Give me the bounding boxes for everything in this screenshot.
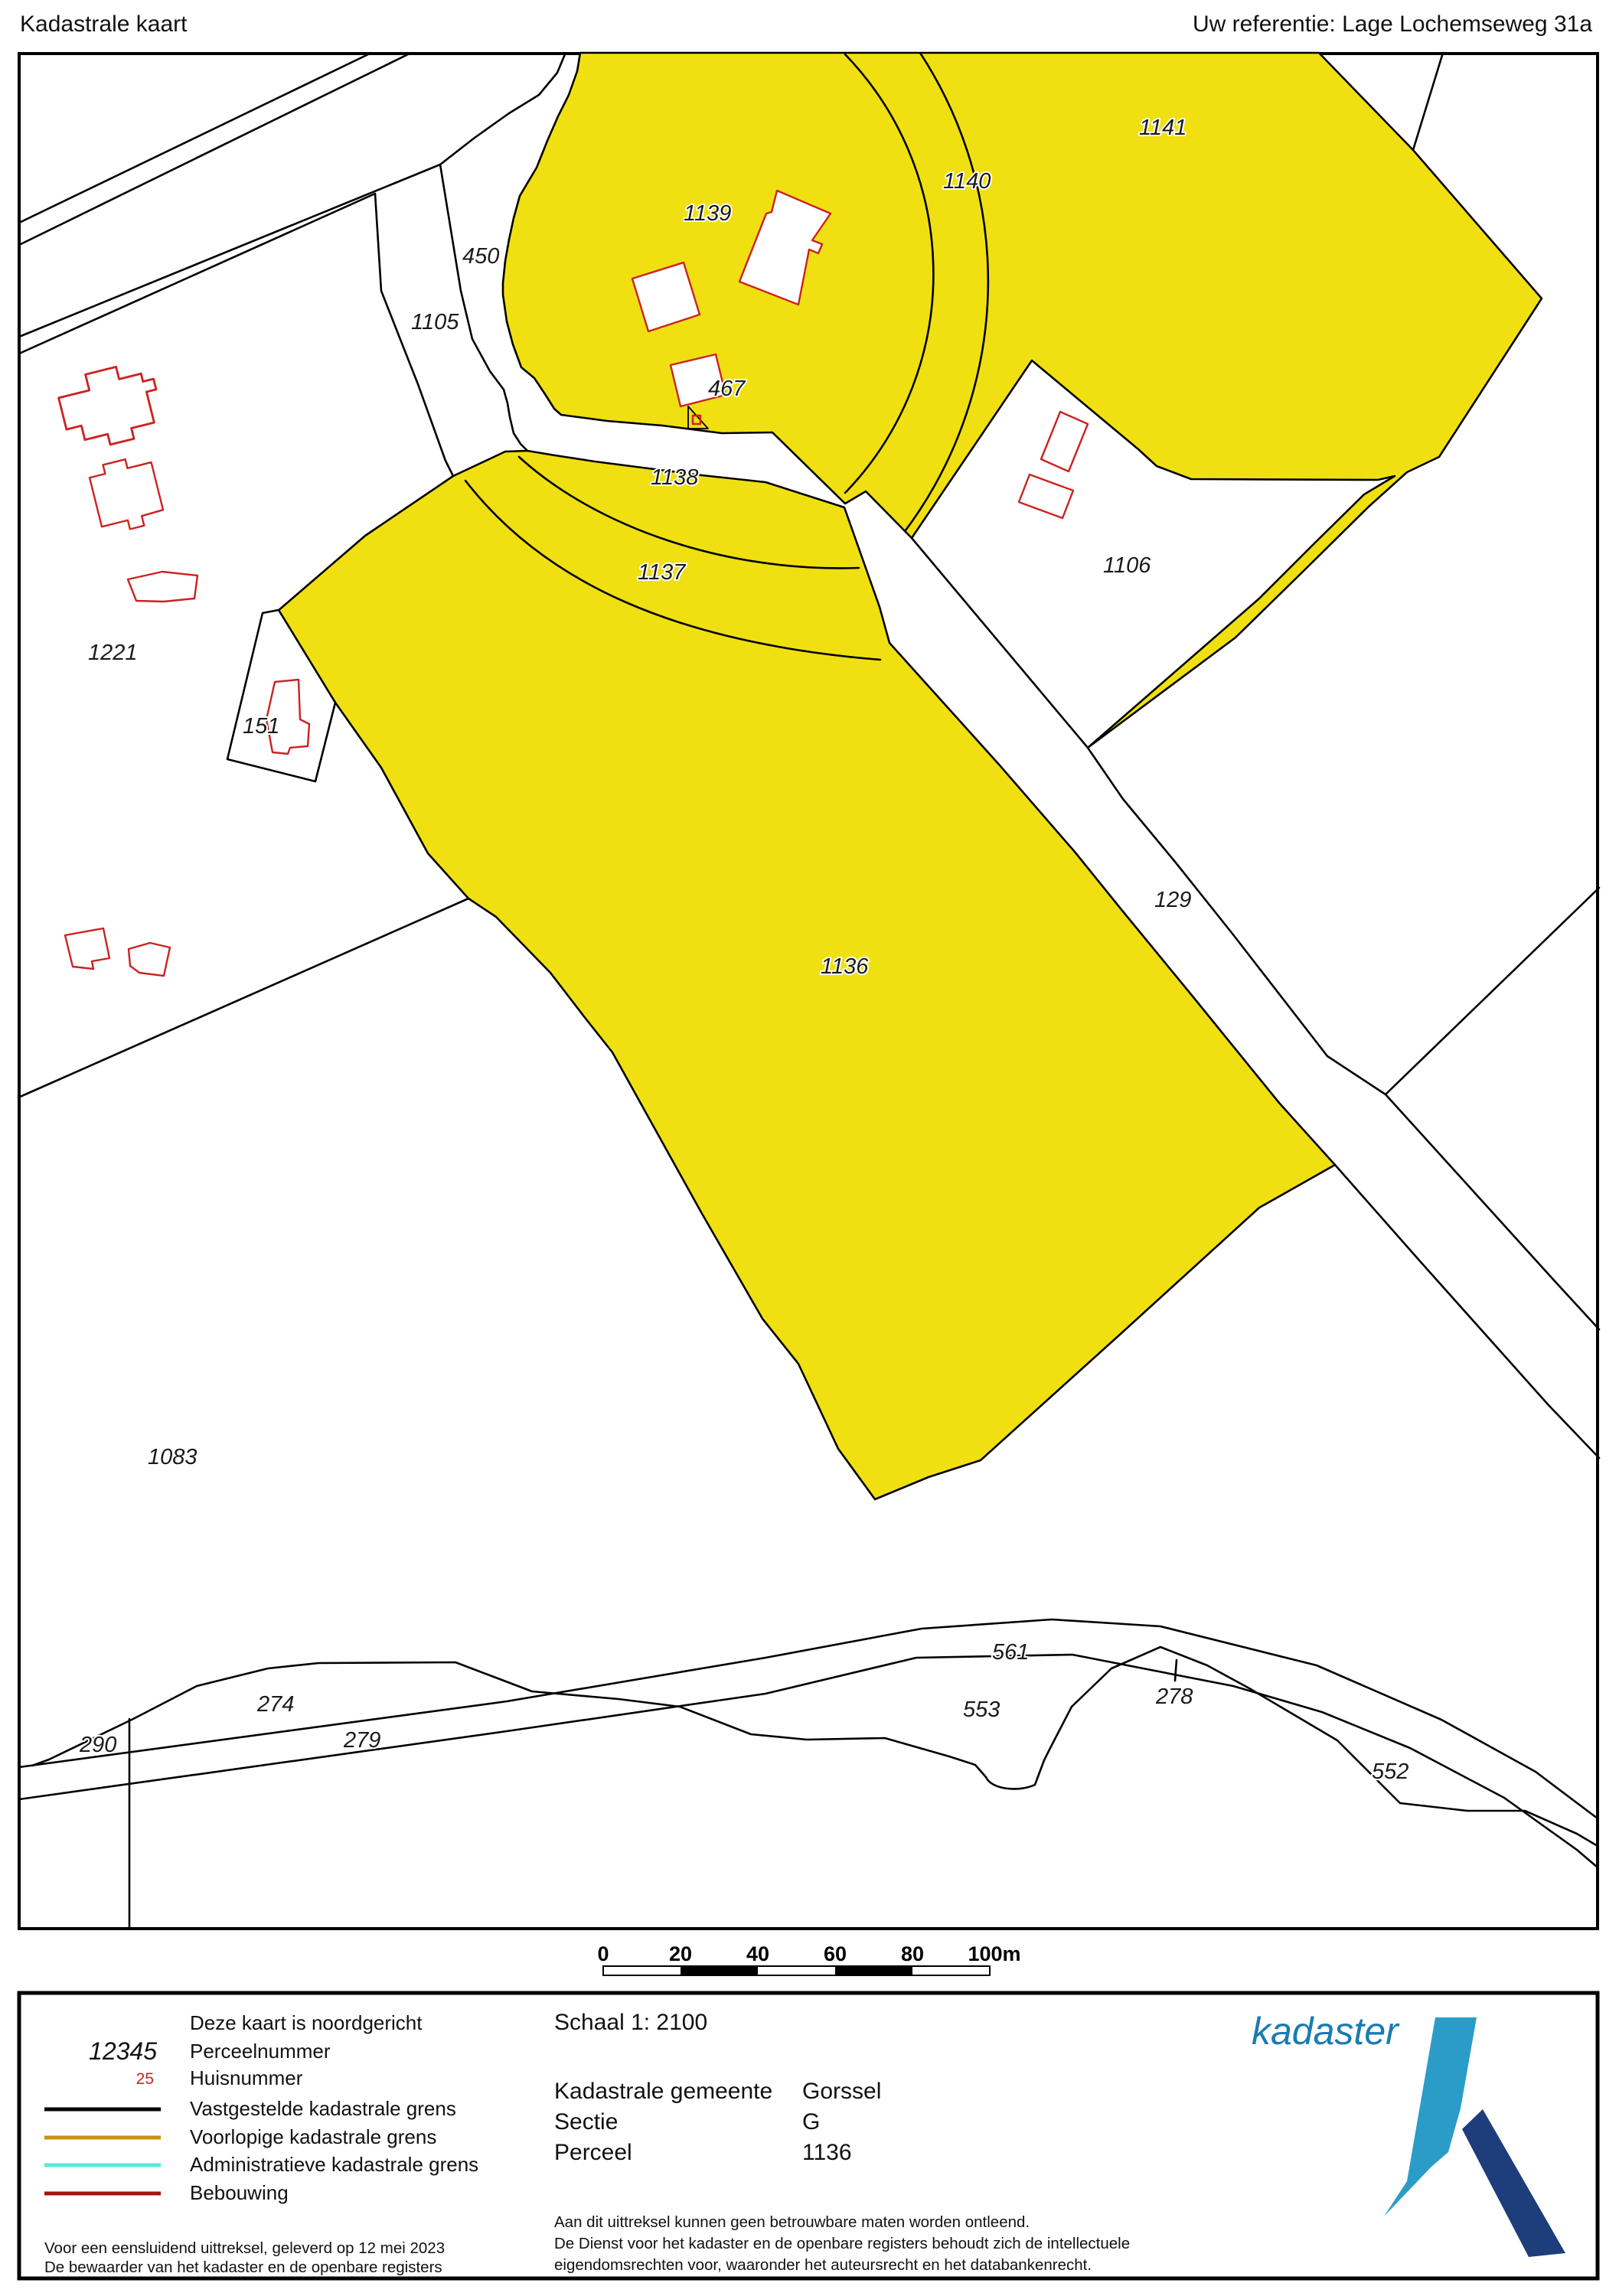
svg-text:1136: 1136 <box>821 954 869 979</box>
svg-text:467: 467 <box>708 377 746 401</box>
svg-text:Perceel: Perceel <box>554 2140 632 2165</box>
svg-text:12345: 12345 <box>89 2037 157 2065</box>
svg-text:274: 274 <box>256 1692 294 1717</box>
svg-text:1106: 1106 <box>1103 553 1151 578</box>
svg-text:151: 151 <box>243 714 279 739</box>
svg-text:0: 0 <box>597 1942 609 1965</box>
svg-text:1105: 1105 <box>411 310 459 334</box>
svg-text:Bebouwing: Bebouwing <box>190 2181 289 2204</box>
svg-text:G: G <box>802 2109 820 2135</box>
svg-text:Sectie: Sectie <box>554 2109 618 2135</box>
svg-text:1141: 1141 <box>1139 116 1187 140</box>
svg-text:1083: 1083 <box>148 1445 197 1469</box>
svg-text:Administratieve kadastrale gre: Administratieve kadastrale grens <box>190 2153 478 2176</box>
svg-text:Voor een eensluidend uittrekse: Voor een eensluidend uittreksel, gelever… <box>44 2239 445 2257</box>
svg-text:Vastgestelde kadastrale grens: Vastgestelde kadastrale grens <box>190 2097 456 2120</box>
svg-text:279: 279 <box>343 1728 380 1753</box>
svg-text:450: 450 <box>462 244 499 269</box>
svg-text:eigendomsrechten voor, waarond: eigendomsrechten voor, waaronder het aut… <box>554 2256 1092 2274</box>
svg-text:1137: 1137 <box>638 560 687 585</box>
svg-text:60: 60 <box>824 1942 847 1965</box>
svg-text:De Dienst voor het kadaster en: De Dienst voor het kadaster en de openba… <box>554 2235 1130 2252</box>
svg-text:Kadastrale gemeente: Kadastrale gemeente <box>554 2079 772 2104</box>
svg-text:Perceelnummer: Perceelnummer <box>190 2040 331 2063</box>
svg-text:Voorlopige kadastrale grens: Voorlopige kadastrale grens <box>190 2125 436 2148</box>
svg-text:129: 129 <box>1154 888 1191 912</box>
svg-text:100m: 100m <box>968 1942 1020 1965</box>
svg-text:40: 40 <box>746 1942 769 1965</box>
svg-text:1140: 1140 <box>943 169 991 194</box>
svg-text:1136: 1136 <box>802 2140 852 2165</box>
svg-text:80: 80 <box>901 1942 924 1965</box>
svg-text:1138: 1138 <box>651 465 698 490</box>
svg-text:25: 25 <box>136 2070 154 2088</box>
svg-text:Schaal 1: 2100: Schaal 1: 2100 <box>554 2010 707 2035</box>
svg-text:290: 290 <box>79 1733 116 1757</box>
svg-text:Gorssel: Gorssel <box>802 2079 881 2104</box>
svg-text:20: 20 <box>669 1942 692 1965</box>
svg-text:1139: 1139 <box>684 201 731 226</box>
svg-text:561: 561 <box>992 1640 1029 1665</box>
svg-text:553: 553 <box>963 1698 1000 1722</box>
svg-text:Aan dit uittreksel kunnen geen: Aan dit uittreksel kunnen geen betrouwba… <box>554 2213 1030 2231</box>
svg-text:552: 552 <box>1372 1760 1408 1784</box>
svg-text:1221: 1221 <box>88 641 138 665</box>
svg-text:Deze kaart is noordgericht: Deze kaart is noordgericht <box>190 2011 423 2034</box>
svg-text:Uw referentie: Lage Lochemsewe: Uw referentie: Lage Lochemseweg 31a <box>1193 11 1592 37</box>
svg-text:kadaster: kadaster <box>1252 2010 1400 2053</box>
svg-text:Kadastrale kaart: Kadastrale kaart <box>20 11 188 37</box>
svg-text:De bewaarder van het kadaster: De bewaarder van het kadaster en de open… <box>44 2258 442 2276</box>
svg-text:278: 278 <box>1155 1684 1193 1709</box>
svg-text:Huisnummer: Huisnummer <box>190 2066 303 2089</box>
